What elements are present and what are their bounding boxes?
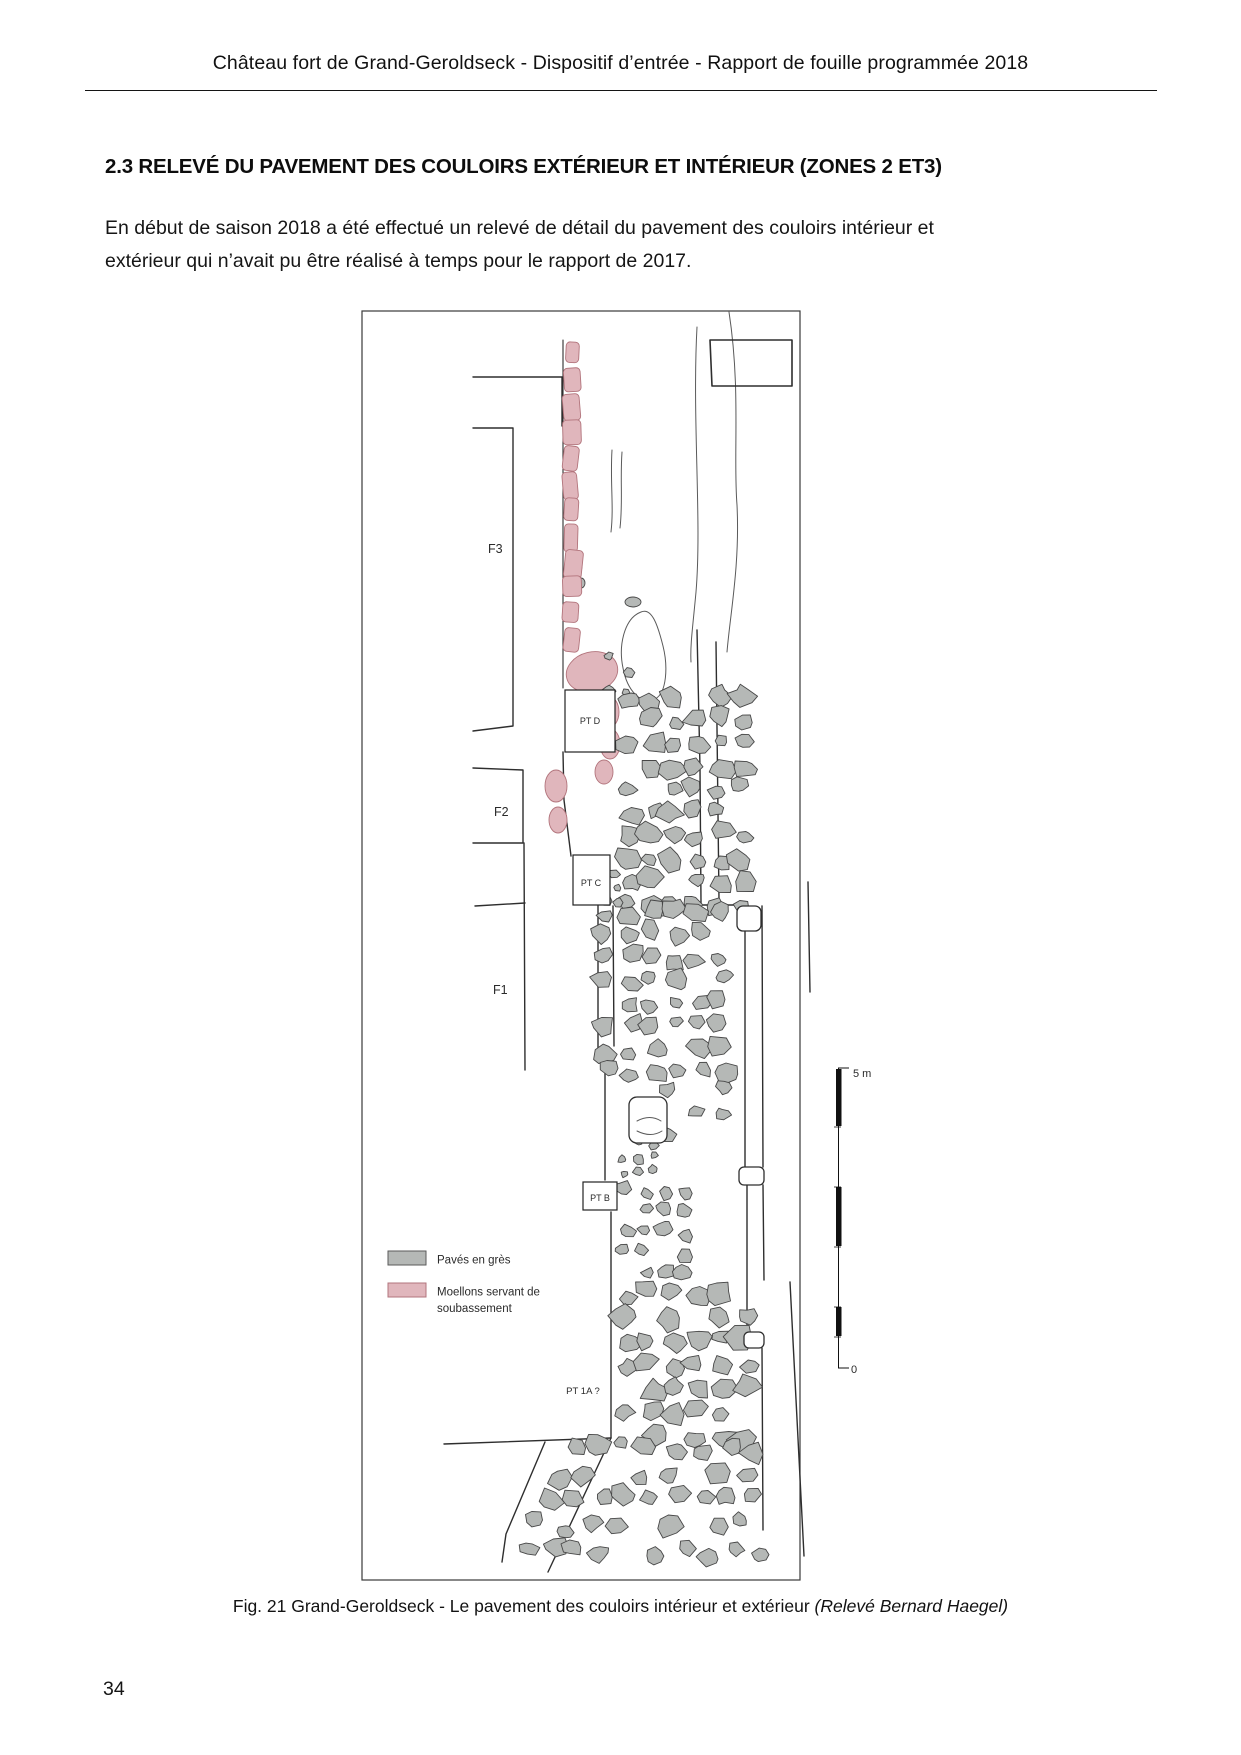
paragraph-line: En début de saison 2018 a été effectué u… <box>105 212 1035 245</box>
label-f1: F1 <box>493 983 508 997</box>
figure-legend: Pavés en grès Moellons servant de soubas… <box>388 1251 540 1315</box>
section-title: 2.3 RELEVÉ DU PAVEMENT DES COULOIRS EXTÉ… <box>105 155 1095 179</box>
label-f2: F2 <box>494 805 509 819</box>
page-number: 34 <box>103 1678 125 1701</box>
label-pt-1a: PT 1A ? <box>566 1386 600 1397</box>
paragraph-line: extérieur qui n’avait pu être réalisé à … <box>105 245 1035 278</box>
figure-caption: Fig. 21 Grand-Geroldseck - Le pavement d… <box>0 1596 1241 1617</box>
body-paragraph: En début de saison 2018 a été effectué u… <box>105 212 1035 278</box>
page-header: Château fort de Grand-Geroldseck - Dispo… <box>0 52 1241 75</box>
header-rule <box>85 90 1157 91</box>
legend-swatch-moellons <box>388 1283 426 1297</box>
label-f3: F3 <box>488 542 503 556</box>
legend-label-moellons-line2: soubassement <box>437 1303 513 1315</box>
caption-text: Fig. 21 Grand-Geroldseck - Le pavement d… <box>233 1596 815 1616</box>
label-pt-d: PT D <box>580 716 601 726</box>
terrain-lines <box>572 312 738 701</box>
legend-label-moellons-line1: Moellons servant de <box>437 1287 540 1299</box>
scale-zero-label: 0 <box>851 1364 857 1376</box>
scale-bar: 5 m 0 <box>834 1068 871 1376</box>
label-pt-b: PT B <box>590 1193 610 1203</box>
moellons-strip <box>562 342 584 653</box>
legend-swatch-paves <box>388 1251 426 1265</box>
label-pt-c: PT C <box>581 878 602 888</box>
scale-top-label: 5 m <box>853 1068 871 1080</box>
report-page: Château fort de Grand-Geroldseck - Dispo… <box>0 0 1241 1755</box>
caption-credit: (Relevé Bernard Haegel) <box>815 1596 1009 1616</box>
excavation-plan-figure: PT D PT C PT B F3 F2 F1 PT 1A ? 5 m <box>340 300 900 1600</box>
legend-label-paves: Pavés en grès <box>437 1255 511 1267</box>
